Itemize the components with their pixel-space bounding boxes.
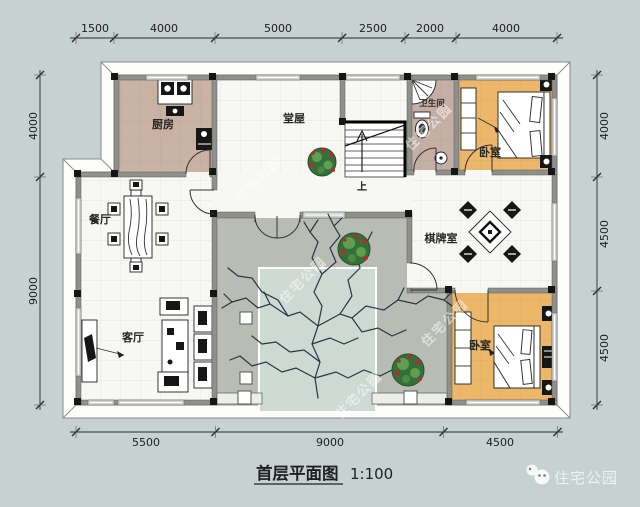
dim-bottom-1: 9000 <box>316 436 344 449</box>
dining-label: 餐厅 <box>88 212 111 226</box>
plan-title: 首层平面图 <box>256 463 339 483</box>
sink-icon <box>435 152 447 164</box>
dim-top-0: 1500 <box>81 22 109 35</box>
floor-plan-drawing: 上 厨房 <box>0 0 640 507</box>
dim-right-1: 4500 <box>598 220 611 248</box>
chess-room-label: 棋牌室 <box>424 231 458 245</box>
dim-bottom-0: 5500 <box>132 436 160 449</box>
plan-scale: 1:100 <box>350 465 393 483</box>
dim-right-2: 4500 <box>598 334 611 362</box>
plant-courtyard-se <box>392 354 424 386</box>
brand-name: 住宅公园 <box>554 469 618 487</box>
kitchen-label: 厨房 <box>152 117 174 131</box>
dim-right-0: 4000 <box>598 112 611 140</box>
dim-top-1: 4000 <box>150 22 178 35</box>
dim-left-0: 4000 <box>27 112 40 140</box>
dim-top-2: 5000 <box>264 22 292 35</box>
sofa-set <box>158 298 212 392</box>
dim-top-4: 2000 <box>416 22 444 35</box>
hall-label: 堂屋 <box>283 111 305 125</box>
dim-top-5: 4000 <box>492 22 520 35</box>
dim-top-3: 2500 <box>359 22 387 35</box>
floor-plan-page: 上 厨房 <box>0 0 640 507</box>
living-label: 客厅 <box>121 330 144 344</box>
plant-hall <box>308 148 336 176</box>
plant-courtyard-ne <box>338 233 370 265</box>
dim-left-1: 9000 <box>27 277 40 305</box>
dim-bottom-2: 4500 <box>486 436 514 449</box>
bedroom-bottom-label: 卧室 <box>469 338 491 352</box>
fridge-icon <box>196 128 213 150</box>
bedroom-top-label: 卧室 <box>479 145 501 159</box>
stairs-up-label: 上 <box>357 180 367 193</box>
title-block: 首层平面图 1:100 <box>254 463 393 484</box>
